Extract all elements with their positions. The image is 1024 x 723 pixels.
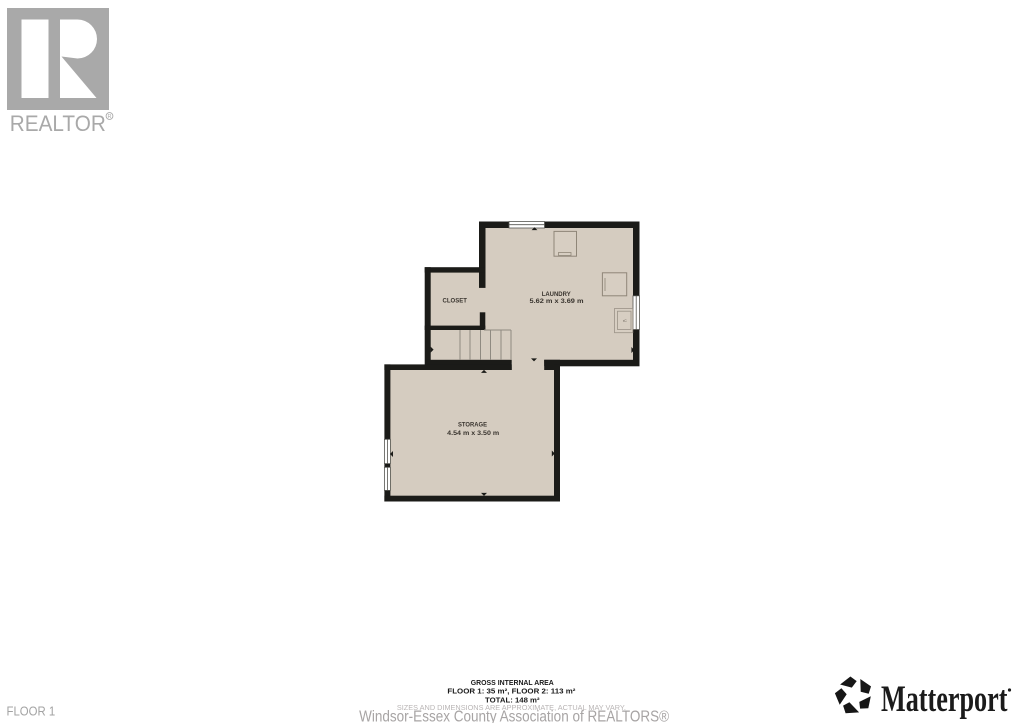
svg-text:FLOOR 1: 35 m², FLOOR 2: 113 m: FLOOR 1: 35 m², FLOOR 2: 113 m²: [447, 687, 576, 696]
svg-text:REALTOR: REALTOR: [10, 111, 106, 136]
svg-text:GROSS INTERNAL AREA: GROSS INTERNAL AREA: [471, 678, 555, 687]
svg-text:LAUNDRY: LAUNDRY: [542, 291, 572, 298]
svg-text:STORAGE: STORAGE: [458, 421, 488, 428]
svg-text:4.54 m x 3.50 m: 4.54 m x 3.50 m: [447, 430, 499, 437]
svg-text:CLOSET: CLOSET: [443, 298, 467, 305]
svg-text:Windsor-Essex County Associati: Windsor-Essex County Association of REAL…: [359, 708, 669, 723]
svg-text:▪C: ▪C: [623, 319, 627, 323]
svg-text:Matterport: Matterport: [881, 678, 1008, 719]
svg-text:R: R: [108, 114, 112, 120]
svg-text:FLOOR 1: FLOOR 1: [7, 704, 56, 719]
svg-text:5.62 m x 3.69 m: 5.62 m x 3.69 m: [530, 298, 584, 305]
